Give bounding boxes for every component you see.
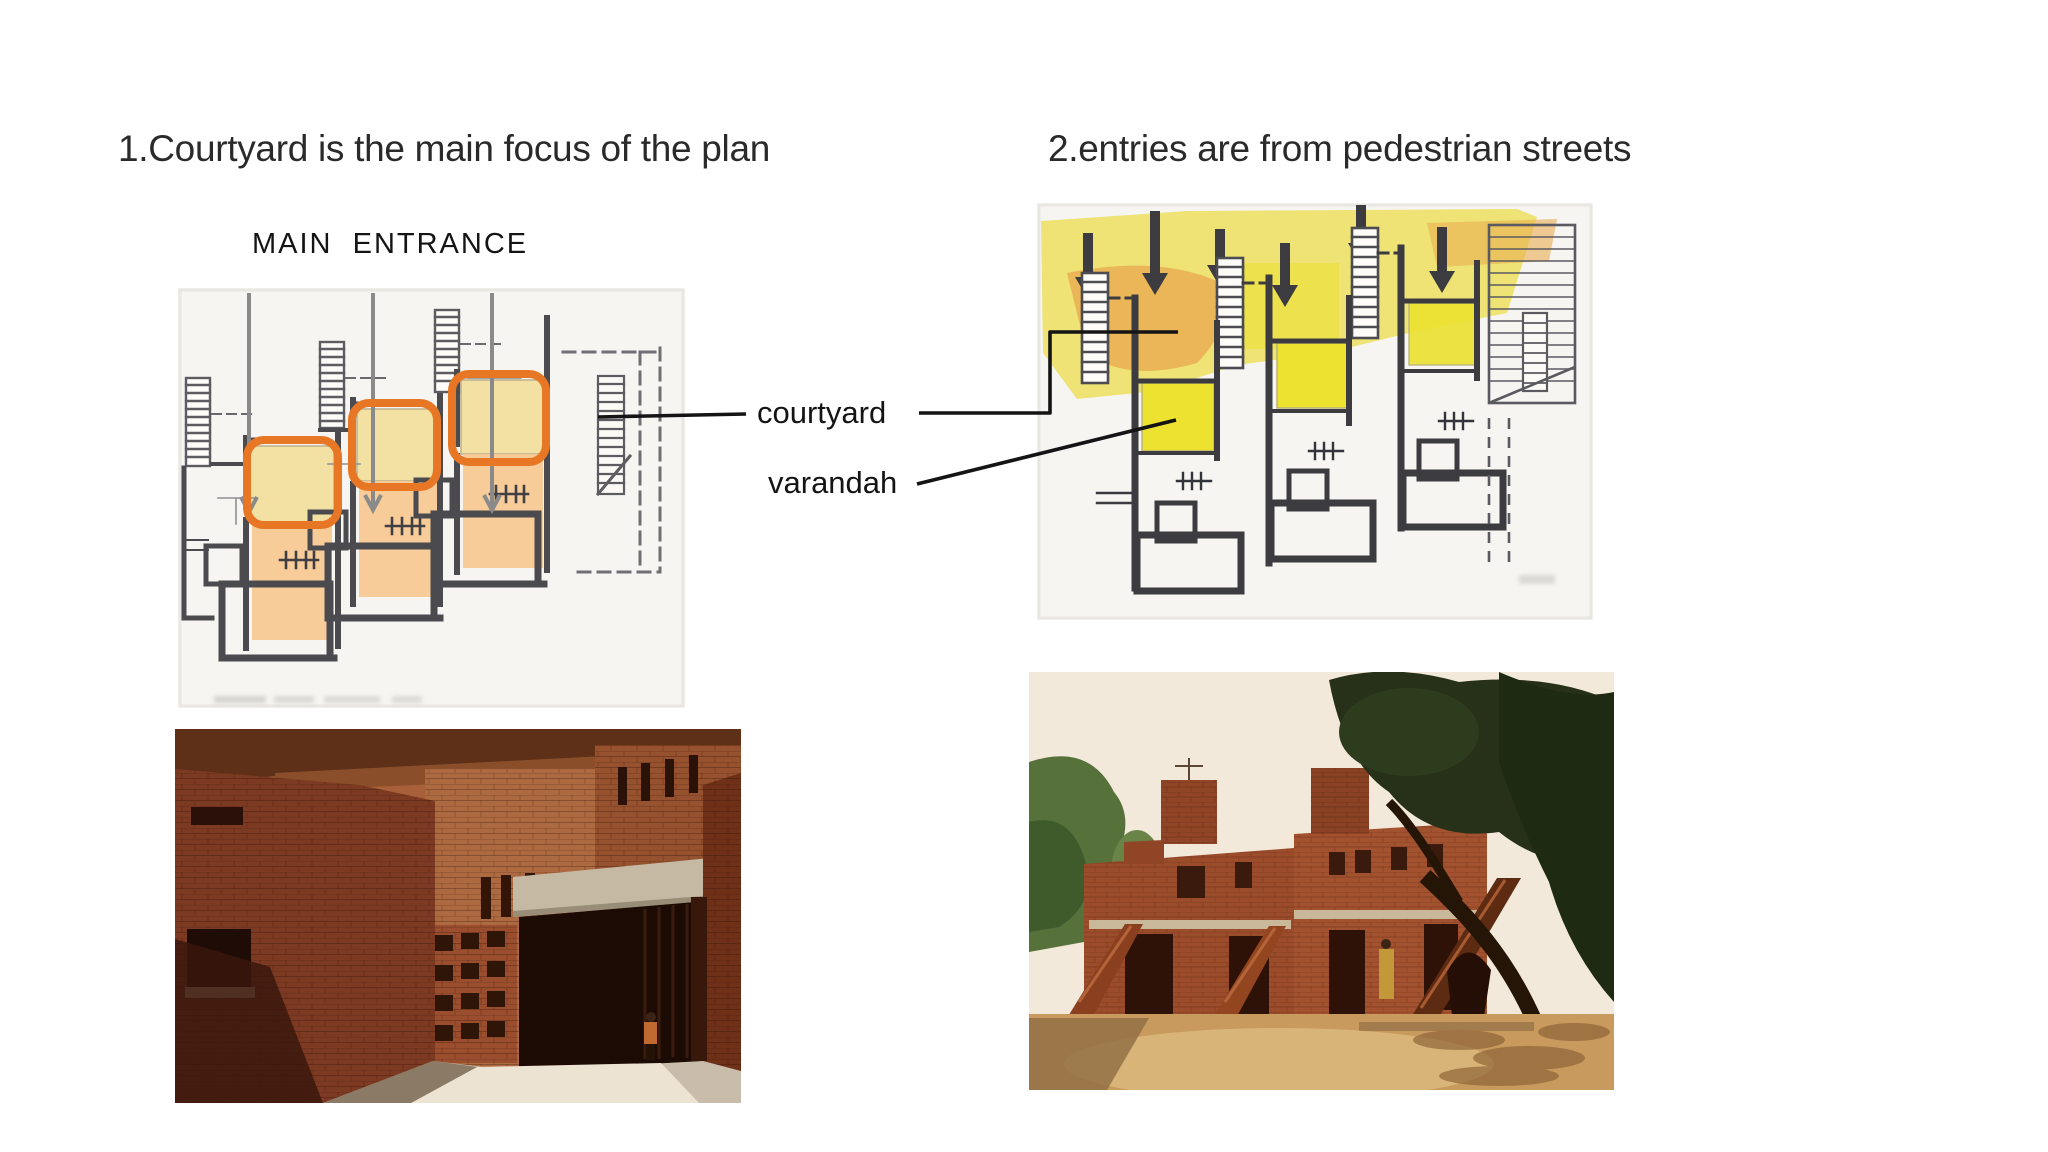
heading-courtyard-focus: 1.Courtyard is the main focus of the pla… xyxy=(118,128,770,170)
stair-hatch-icon xyxy=(320,342,344,428)
heading-pedestrian-entries: 2.entries are from pedestrian streets xyxy=(1048,128,1631,170)
courtyard-label: courtyard xyxy=(757,395,886,431)
courtyard-photo xyxy=(175,729,741,1103)
courtyard-plan-image xyxy=(178,288,685,708)
ground xyxy=(1029,1014,1614,1090)
slide: { "headings": { "left": "1.Courtyard is … xyxy=(0,0,2048,1152)
stair-hatch-icon xyxy=(186,378,210,466)
street-photo xyxy=(1029,672,1614,1090)
main-entrance-label: MAIN ENTRANCE xyxy=(252,228,528,261)
plan-mark-smudge xyxy=(1519,575,1555,584)
varandah-label: varandah xyxy=(768,465,897,501)
entries-plan-image xyxy=(1037,203,1593,620)
